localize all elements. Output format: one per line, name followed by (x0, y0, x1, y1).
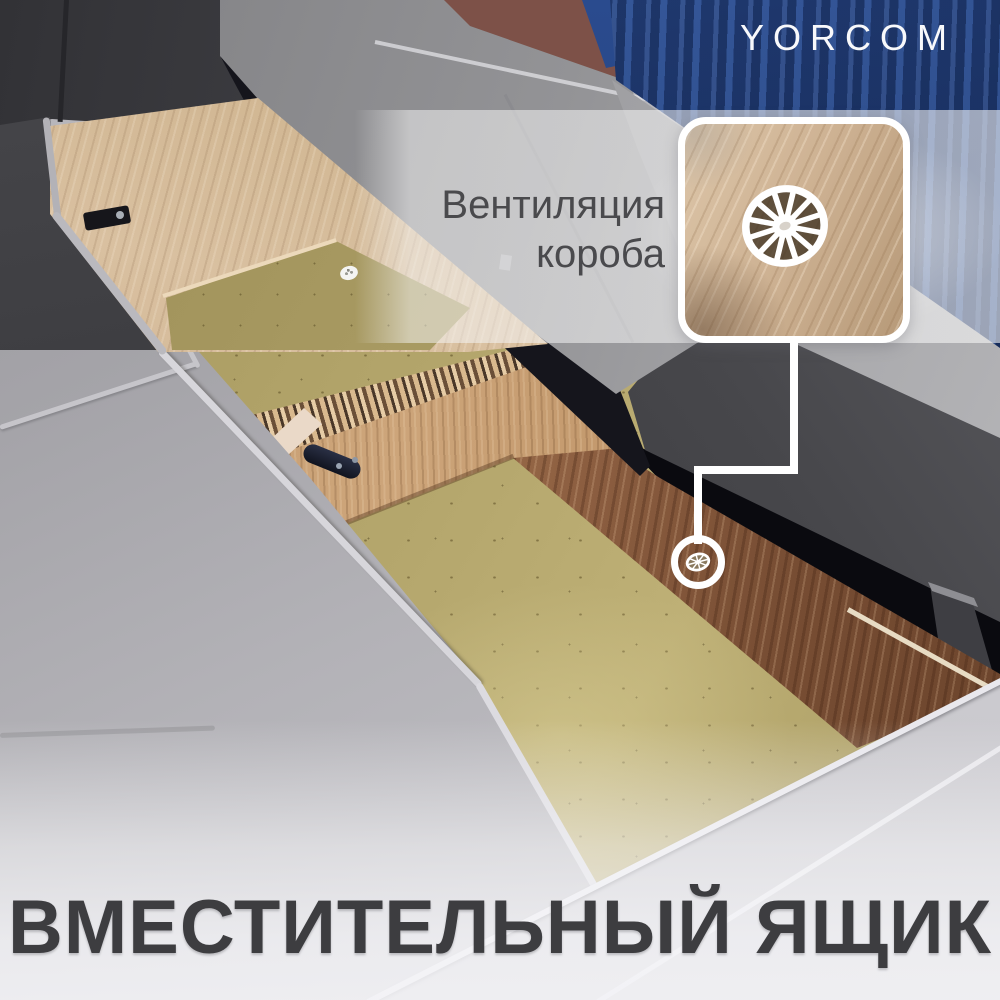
vent-wheel-icon (725, 168, 844, 283)
product-image: Вентиляция короба ВМЕСТИТЕЛЬНЫЙ ЯЩИК YOR… (0, 0, 1000, 1000)
strap-stud (336, 463, 342, 469)
strap-stud (352, 457, 358, 463)
brand-logo: YORCOM (740, 17, 956, 59)
annotation-line2: короба (441, 230, 665, 279)
annotation-label: Вентиляция короба (441, 181, 665, 279)
callout-line (694, 466, 702, 544)
callout-line (790, 340, 798, 472)
annotation-line1: Вентиляция (441, 181, 665, 230)
callout-line (694, 466, 798, 474)
hinge-stud (116, 211, 124, 219)
vent-inset-thumbnail (678, 117, 910, 343)
caption-title: ВМЕСТИТЕЛЬНЫЙ ЯЩИК (0, 884, 1000, 971)
